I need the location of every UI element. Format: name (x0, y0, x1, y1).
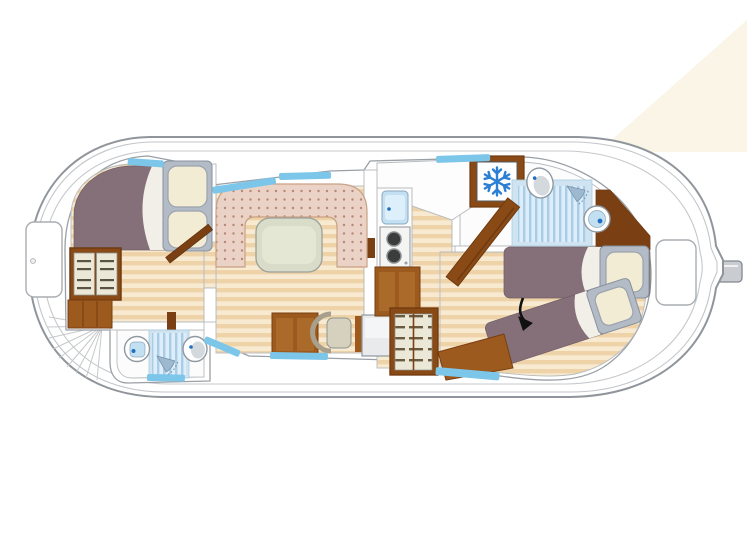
burner (387, 232, 401, 246)
low-cabinet (68, 300, 112, 328)
bow-hatch (26, 222, 62, 297)
toilet (183, 337, 207, 362)
pillow (168, 166, 207, 207)
dinette-table (256, 218, 322, 272)
bulkhead-bow-lower (204, 288, 216, 322)
stove (380, 227, 410, 267)
desk-side (355, 316, 362, 352)
window (147, 374, 185, 382)
stern-hatch (656, 240, 696, 305)
window (279, 172, 331, 180)
wall-stub-bath (167, 312, 176, 330)
washbasin (584, 206, 610, 232)
desk (362, 315, 393, 356)
shelved-wardrobe (390, 308, 438, 375)
washbasin (125, 337, 150, 362)
open-shelf-wardrobe (70, 248, 121, 300)
hatch-handle (31, 259, 36, 264)
shower (149, 330, 189, 378)
boat-floorplan (0, 0, 747, 560)
burner (387, 249, 401, 263)
light-beam (598, 20, 747, 152)
mid-bath-top-wall (110, 322, 204, 330)
galley-sink (382, 191, 408, 224)
window (270, 352, 328, 360)
